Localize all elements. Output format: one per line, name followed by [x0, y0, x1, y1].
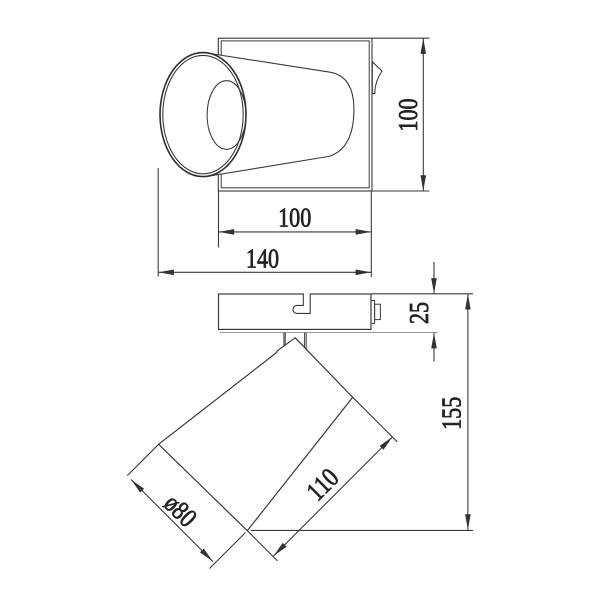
- svg-text:ø80: ø80: [158, 489, 202, 533]
- svg-text:100: 100: [278, 203, 311, 233]
- svg-text:140: 140: [246, 245, 279, 275]
- svg-text:155: 155: [438, 397, 468, 430]
- svg-text:110: 110: [301, 463, 345, 507]
- svg-text:25: 25: [405, 302, 435, 324]
- svg-text:100: 100: [394, 98, 424, 131]
